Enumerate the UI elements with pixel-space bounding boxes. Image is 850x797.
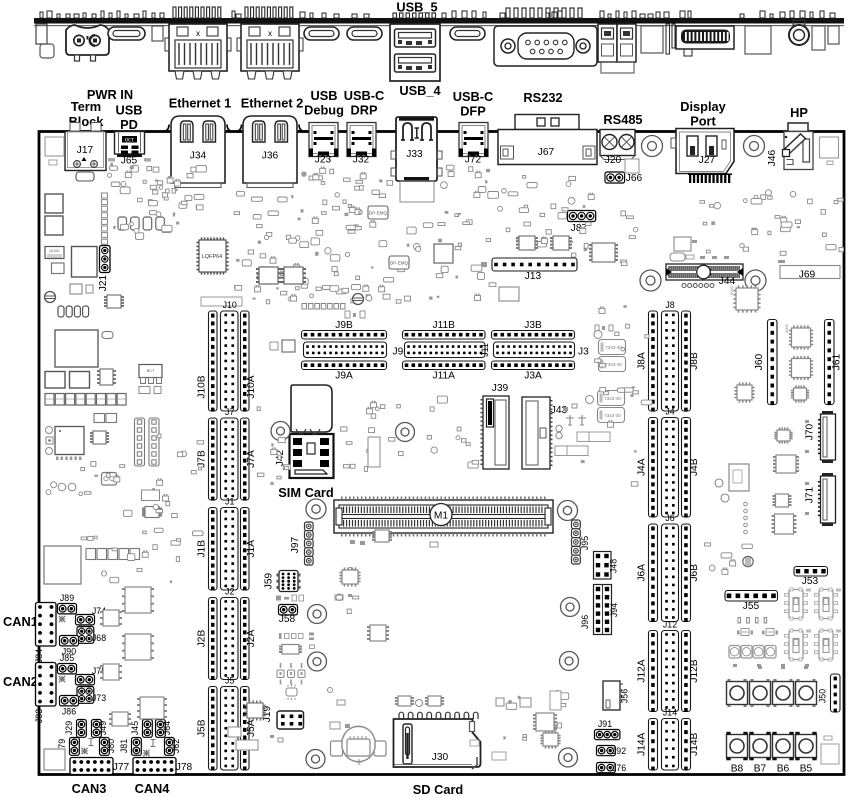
svg-text:Port: Port (690, 114, 716, 129)
svg-text:J36: J36 (262, 151, 279, 162)
svg-text:RS232: RS232 (523, 90, 562, 105)
svg-text:Debug: Debug (304, 103, 344, 118)
svg-text:J49: J49 (98, 721, 108, 735)
svg-text:7343-40: 7343-40 (605, 345, 622, 350)
svg-text:J17: J17 (77, 145, 94, 156)
svg-text:J19: J19 (262, 705, 273, 722)
svg-text:SD Card: SD Card (413, 782, 464, 797)
svg-text:Term: Term (71, 99, 101, 114)
svg-text:J10A: J10A (246, 375, 257, 398)
svg-text:7343-40: 7343-40 (605, 362, 622, 367)
svg-text:J10B: J10B (197, 375, 208, 398)
svg-text:USB-C: USB-C (344, 88, 385, 103)
svg-text:J94: J94 (609, 603, 619, 617)
svg-text:B5: B5 (800, 764, 813, 775)
svg-text:J10: J10 (223, 300, 237, 310)
svg-text:J11: J11 (480, 343, 490, 357)
svg-text:J55: J55 (743, 601, 760, 612)
svg-text:J59: J59 (264, 572, 275, 589)
svg-text:J61: J61 (832, 353, 843, 370)
svg-text:J14B: J14B (689, 732, 700, 755)
svg-text:J11A: J11A (433, 371, 456, 382)
svg-text:J14A: J14A (637, 732, 648, 755)
svg-text:PD: PD (120, 117, 138, 132)
svg-text:J34: J34 (190, 151, 207, 162)
svg-text:J73: J73 (92, 693, 106, 703)
svg-text:J83: J83 (34, 709, 44, 723)
svg-text:J9: J9 (393, 347, 404, 358)
svg-text:J6B: J6B (689, 564, 700, 582)
svg-text:J12B: J12B (689, 659, 700, 682)
svg-text:USB: USB (310, 88, 337, 103)
svg-text:CAN2: CAN2 (3, 674, 38, 689)
svg-text:J6: J6 (665, 513, 674, 523)
svg-text:J7B: J7B (197, 450, 208, 468)
svg-text:HP: HP (790, 105, 808, 120)
svg-text:J2B: J2B (197, 630, 208, 648)
svg-text:DP-EMQ: DP-EMQ (390, 261, 408, 266)
svg-text:J78: J78 (176, 762, 193, 773)
svg-text:J12: J12 (663, 620, 677, 630)
svg-text:DP-EMQ: DP-EMQ (369, 211, 387, 216)
svg-text:J5A: J5A (246, 719, 257, 737)
svg-text:J97: J97 (290, 536, 301, 553)
svg-text:J45: J45 (130, 721, 140, 735)
svg-text:J9B: J9B (335, 320, 353, 331)
svg-text:J27: J27 (699, 155, 716, 166)
svg-text:B7: B7 (754, 764, 767, 775)
svg-text:J64: J64 (162, 721, 172, 735)
svg-text:M1: M1 (434, 511, 448, 522)
svg-text:J56: J56 (620, 689, 630, 703)
svg-text:J91: J91 (598, 719, 612, 729)
svg-text:B6: B6 (777, 764, 790, 775)
svg-text:CAN4: CAN4 (135, 781, 171, 796)
svg-text:J2A: J2A (246, 630, 257, 648)
svg-text:J12A: J12A (637, 659, 648, 682)
svg-text:J5B: J5B (197, 719, 208, 737)
svg-text:J5: J5 (225, 676, 234, 686)
svg-text:J77: J77 (113, 762, 130, 773)
svg-text:J1B: J1B (197, 540, 208, 558)
svg-text:J3B: J3B (524, 320, 542, 331)
svg-text:J23: J23 (315, 155, 332, 166)
svg-text:J68: J68 (92, 633, 106, 643)
svg-text:0000: 0000 (729, 285, 734, 295)
svg-text:J4B: J4B (689, 458, 700, 476)
svg-text:CAN3: CAN3 (72, 781, 107, 796)
svg-text:J66: J66 (626, 173, 643, 184)
svg-text:J65: J65 (121, 156, 138, 167)
svg-text:J96: J96 (580, 615, 590, 629)
svg-text:BCT: BCT (147, 369, 155, 373)
svg-text:J89: J89 (60, 593, 74, 603)
svg-text:J8: J8 (665, 300, 674, 310)
svg-text:J21: J21 (98, 274, 109, 291)
svg-text:J46: J46 (767, 149, 778, 166)
svg-text:SIM Card: SIM Card (278, 485, 333, 500)
svg-text:J95: J95 (580, 536, 590, 550)
svg-text:J81: J81 (119, 739, 129, 753)
svg-text:J70: J70 (805, 423, 816, 440)
svg-text:J7A: J7A (246, 450, 257, 468)
svg-text:J72: J72 (465, 155, 482, 166)
svg-text:J4: J4 (665, 407, 674, 417)
svg-text:J9A: J9A (335, 371, 353, 382)
svg-text:J44: J44 (719, 276, 736, 287)
svg-text:J7: J7 (225, 407, 234, 417)
svg-text:J1: J1 (225, 497, 234, 507)
svg-text:J8A: J8A (637, 352, 648, 370)
svg-text:J14: J14 (663, 708, 677, 718)
svg-text:LQFP64: LQFP64 (202, 254, 222, 260)
svg-text:J39: J39 (492, 383, 509, 394)
svg-text:USB_5: USB_5 (396, 0, 437, 15)
svg-text:USB_4: USB_4 (399, 83, 441, 98)
svg-text:J3A: J3A (524, 371, 542, 382)
svg-text:J3: J3 (578, 347, 589, 358)
svg-text:J80: J80 (106, 739, 116, 753)
svg-text:J76: J76 (612, 763, 626, 773)
svg-text:J11B: J11B (433, 320, 456, 331)
svg-text:J69: J69 (799, 270, 816, 281)
svg-text:7343-40: 7343-40 (604, 413, 621, 418)
svg-text:J58: J58 (279, 614, 296, 625)
svg-text:J86: J86 (62, 707, 76, 717)
svg-text:J92: J92 (612, 746, 626, 756)
svg-text:J13: J13 (525, 271, 542, 282)
svg-text:J4A: J4A (637, 458, 648, 476)
svg-text:J6A: J6A (637, 564, 648, 582)
svg-text:0000: 0000 (784, 323, 789, 333)
svg-text:J60: J60 (754, 353, 765, 370)
svg-text:J50: J50 (818, 689, 828, 703)
svg-text:Ethernet 2: Ethernet 2 (241, 96, 304, 111)
svg-text:USB-C: USB-C (453, 89, 494, 104)
svg-text:7343-40: 7343-40 (604, 396, 621, 401)
svg-text:Display: Display (680, 99, 726, 114)
svg-text:DFP: DFP (460, 104, 486, 119)
svg-text:J30: J30 (432, 752, 449, 763)
svg-text:J29: J29 (64, 721, 74, 735)
svg-text:J2: J2 (225, 587, 234, 597)
svg-text:J1A: J1A (246, 540, 257, 558)
svg-text:RS485: RS485 (603, 112, 642, 127)
svg-text:J67: J67 (538, 147, 555, 158)
svg-text:x: x (268, 29, 272, 38)
svg-text:CAN1: CAN1 (3, 614, 38, 629)
svg-text:J71: J71 (805, 486, 816, 503)
svg-text:QUAD: QUAD (49, 249, 60, 253)
svg-text:J33: J33 (406, 149, 423, 160)
svg-text:J84: J84 (34, 649, 44, 663)
svg-text:J53: J53 (802, 576, 819, 587)
svg-text:J8B: J8B (689, 352, 700, 370)
svg-text:J62: J62 (171, 739, 181, 753)
svg-text:DRP: DRP (350, 103, 377, 118)
svg-text:J20: J20 (605, 155, 622, 166)
svg-text:B8: B8 (731, 764, 744, 775)
svg-text:OCT: OCT (125, 138, 134, 144)
svg-text:x: x (196, 29, 200, 38)
svg-text:USB: USB (115, 103, 142, 118)
svg-text:J32: J32 (353, 155, 370, 166)
svg-text:Ethernet 1: Ethernet 1 (169, 96, 232, 111)
svg-text:J85: J85 (60, 653, 74, 663)
svg-text:J48: J48 (609, 559, 619, 573)
